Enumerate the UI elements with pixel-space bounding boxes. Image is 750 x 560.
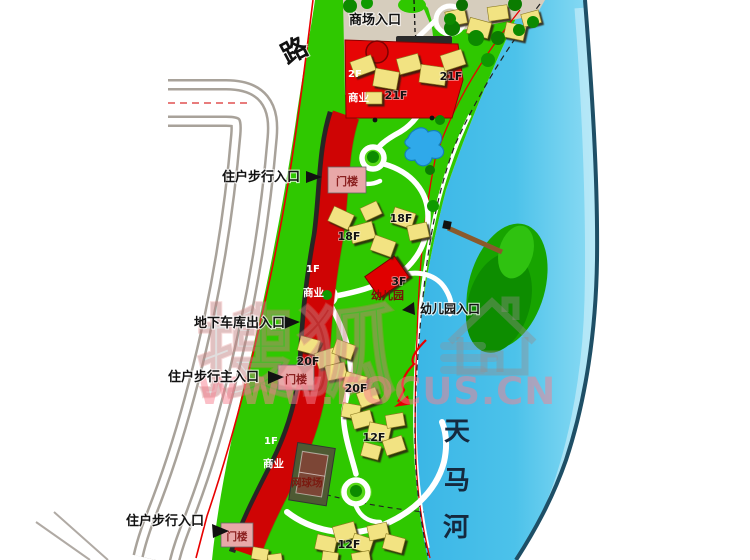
label-floor-2f: 2F <box>348 69 362 80</box>
label-gatehouse-1: 门楼 <box>336 174 358 188</box>
label-floor-12f-b: 12F <box>338 538 361 551</box>
river-char-1: 天 <box>444 417 470 447</box>
label-floor-1f-mid: 1F <box>306 264 320 275</box>
map-dot <box>373 118 378 123</box>
label-resident-entrance-bottom: 住户步行入口 <box>126 513 204 529</box>
label-floor-21f-b: 21F <box>440 70 463 83</box>
label-river-name: 天 马 河 <box>443 417 470 543</box>
label-floor-3f: 3F <box>391 275 406 288</box>
river-char-3: 河 <box>443 513 469 543</box>
label-floor-20f-a: 20F <box>297 355 320 368</box>
label-gatehouse-3: 门楼 <box>227 530 248 543</box>
branch-road-line <box>36 522 90 560</box>
label-commercial-bottom: 商业 <box>263 457 284 470</box>
label-gatehouse-2: 门楼 <box>285 372 307 386</box>
label-mall-entrance: 商场入口 <box>349 12 401 28</box>
label-floor-20f-b: 20F <box>345 382 368 395</box>
label-floor-1f-bottom: 1F <box>264 436 278 447</box>
map-dot <box>430 116 435 121</box>
label-kindergarten: 幼儿园 <box>371 288 404 302</box>
label-underground-garage: 地下车库出入口 <box>194 315 285 331</box>
label-tennis-court: 网球场 <box>291 476 323 489</box>
label-commercial-top: 商业 <box>348 91 369 104</box>
river-char-2: 马 <box>444 466 470 496</box>
label-commercial-mid: 商业 <box>303 286 324 299</box>
watermark: 搜狐 WWW.FOCUS.CN <box>196 295 556 413</box>
label-resident-main-entrance: 住户步行主入口 <box>168 369 259 385</box>
site-plan-map: 搜狐 WWW.FOCUS.CN 商场入口 路 住户步行入口 门楼 2F 商业 2… <box>0 0 750 560</box>
label-resident-entrance-top: 住户步行入口 <box>222 169 300 185</box>
label-floor-18f-a: 18F <box>338 230 361 243</box>
label-floor-12f-a: 12F <box>363 431 386 444</box>
label-floor-21f-a: 21F <box>385 89 408 102</box>
label-floor-18f-b: 18F <box>390 212 413 225</box>
site-plan-page: 搜狐 WWW.FOCUS.CN 商场入口 路 住户步行入口 门楼 2F 商业 2… <box>0 0 750 560</box>
label-kindergarten-entrance: 幼儿园入口 <box>420 301 480 316</box>
